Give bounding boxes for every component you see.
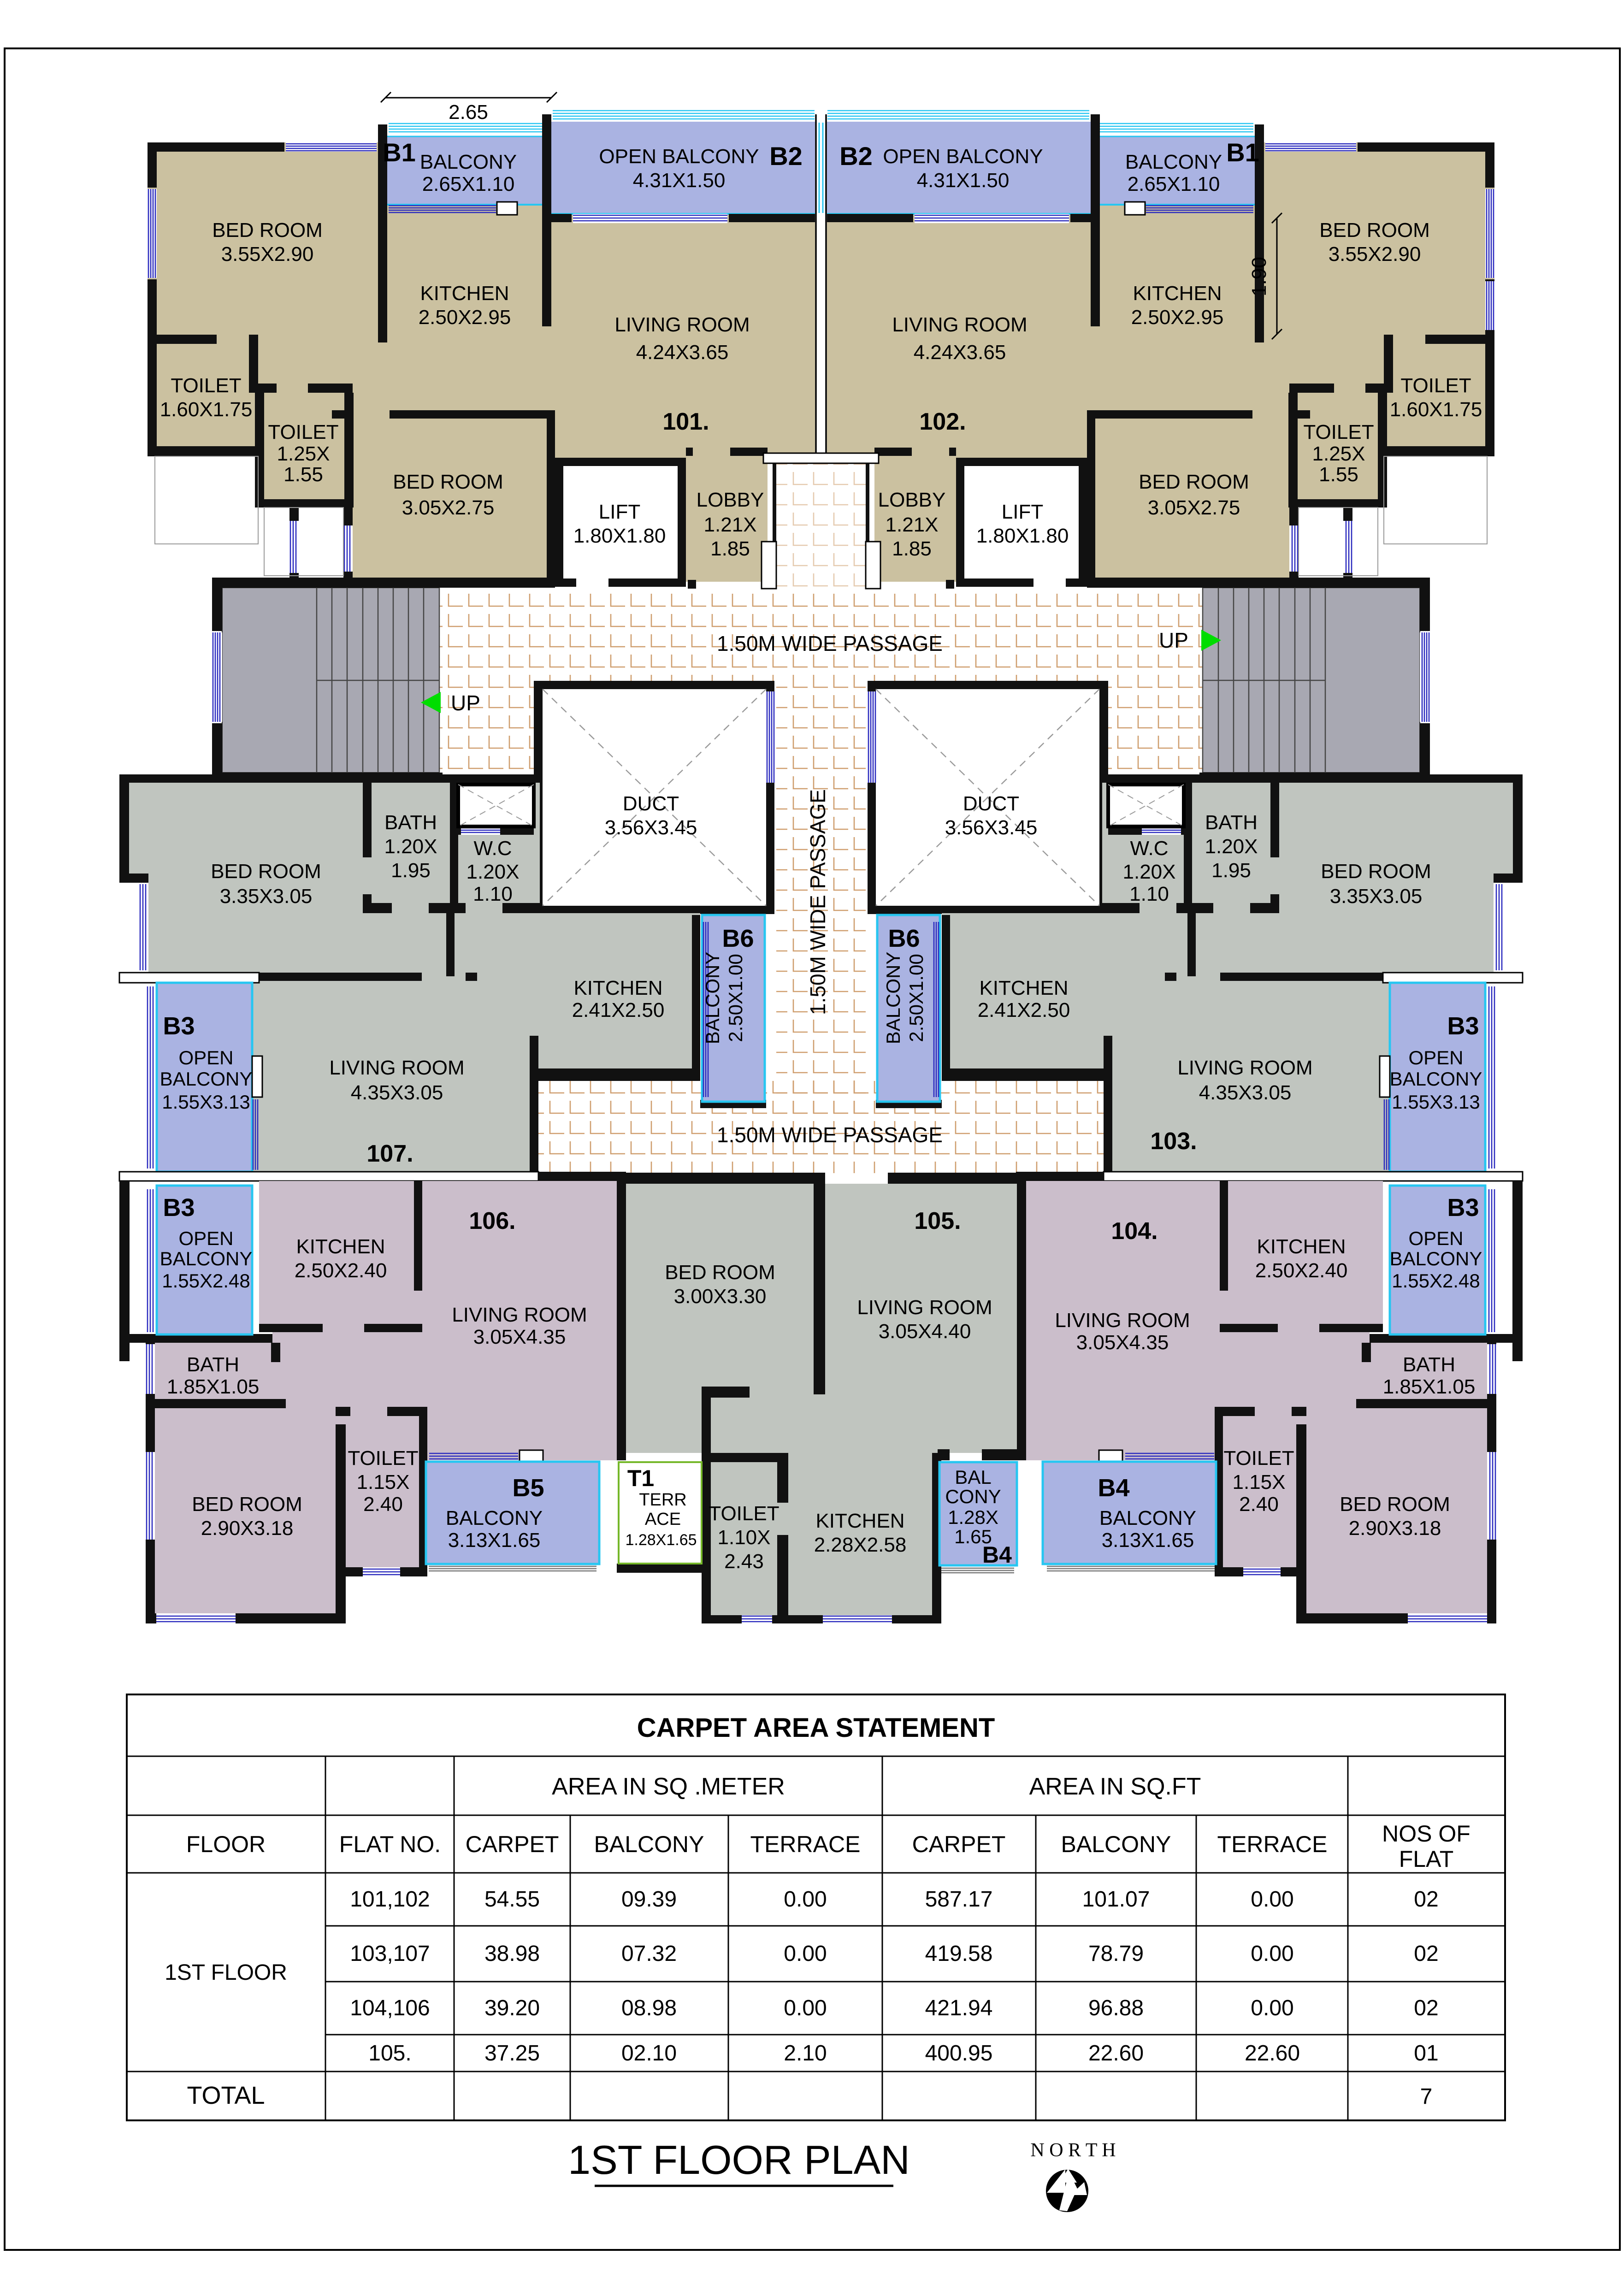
- svg-text:0.00: 0.00: [784, 1996, 827, 2020]
- svg-text:02: 02: [1414, 1996, 1438, 2020]
- svg-text:2.50X1.00: 2.50X1.00: [905, 954, 927, 1042]
- svg-text:BALCONY: BALCONY: [1099, 1507, 1196, 1529]
- svg-text:B2: B2: [769, 142, 803, 171]
- svg-text:3.35X3.05: 3.35X3.05: [1330, 885, 1423, 908]
- svg-text:2.50X2.40: 2.50X2.40: [1255, 1259, 1348, 1282]
- svg-text:DUCT: DUCT: [963, 792, 1019, 815]
- svg-text:1.10: 1.10: [1129, 883, 1169, 905]
- svg-text:1.21X: 1.21X: [886, 514, 939, 536]
- svg-text:1.25X: 1.25X: [277, 443, 330, 465]
- svg-text:CARPET AREA STATEMENT: CARPET AREA STATEMENT: [637, 1713, 995, 1743]
- svg-text:BED ROOM: BED ROOM: [1321, 860, 1431, 883]
- svg-text:2.65: 2.65: [449, 101, 488, 124]
- svg-text:08.98: 08.98: [621, 1996, 677, 2020]
- svg-text:BED ROOM: BED ROOM: [1319, 219, 1430, 242]
- svg-text:1.80X1.80: 1.80X1.80: [976, 525, 1069, 547]
- svg-text:TOILET: TOILET: [1223, 1447, 1294, 1470]
- svg-text:01: 01: [1414, 2041, 1438, 2066]
- svg-text:1.80X1.80: 1.80X1.80: [573, 525, 666, 547]
- svg-text:BALCONY: BALCONY: [1390, 1068, 1482, 1090]
- svg-text:1.60X1.75: 1.60X1.75: [1390, 398, 1482, 421]
- svg-text:2.90X3.18: 2.90X3.18: [1349, 1517, 1441, 1540]
- svg-text:BED ROOM: BED ROOM: [192, 1493, 302, 1516]
- svg-text:1.60X1.75: 1.60X1.75: [160, 398, 253, 421]
- svg-text:B1: B1: [1226, 138, 1259, 167]
- svg-text:ACE: ACE: [645, 1510, 681, 1529]
- svg-text:T1: T1: [627, 1465, 654, 1491]
- svg-text:54.55: 54.55: [484, 1887, 540, 1912]
- svg-text:104,106: 104,106: [350, 1996, 430, 2020]
- svg-text:1.95: 1.95: [391, 859, 431, 882]
- svg-text:103.: 103.: [1150, 1128, 1197, 1155]
- svg-text:OPEN: OPEN: [1408, 1047, 1463, 1068]
- svg-text:BALCONY: BALCONY: [1390, 1248, 1482, 1269]
- svg-text:KITCHEN: KITCHEN: [296, 1235, 385, 1258]
- svg-text:AREA IN SQ .METER: AREA IN SQ .METER: [552, 1773, 785, 1800]
- svg-text:TOILET: TOILET: [1303, 421, 1374, 443]
- svg-text:B6: B6: [722, 925, 754, 952]
- svg-text:1.50M WIDE PASSAGE: 1.50M WIDE PASSAGE: [806, 789, 830, 1015]
- svg-text:BALCONY: BALCONY: [882, 952, 904, 1045]
- svg-text:LIVING ROOM: LIVING ROOM: [857, 1296, 992, 1319]
- svg-text:1.55: 1.55: [283, 463, 323, 486]
- svg-text:2.40: 2.40: [363, 1493, 403, 1516]
- svg-text:3.56X3.45: 3.56X3.45: [945, 816, 1038, 839]
- svg-text:UP: UP: [451, 691, 480, 715]
- svg-text:BALCONY: BALCONY: [446, 1507, 543, 1529]
- svg-text:TOTAL: TOTAL: [187, 2082, 265, 2109]
- svg-text:3.05X4.35: 3.05X4.35: [1076, 1331, 1169, 1354]
- svg-text:BALCONY: BALCONY: [1125, 151, 1222, 173]
- svg-text:BALCONY: BALCONY: [420, 151, 517, 173]
- svg-text:1.28X: 1.28X: [948, 1506, 998, 1528]
- svg-text:LIVING ROOM: LIVING ROOM: [329, 1057, 464, 1079]
- svg-text:1.28X1.65: 1.28X1.65: [625, 1531, 697, 1549]
- svg-text:LIVING ROOM: LIVING ROOM: [452, 1304, 587, 1326]
- svg-text:2.50X2.95: 2.50X2.95: [1131, 306, 1224, 329]
- svg-text:2.65X1.10: 2.65X1.10: [1128, 173, 1220, 195]
- svg-text:421.94: 421.94: [925, 1996, 993, 2020]
- svg-text:1.10X: 1.10X: [718, 1526, 771, 1549]
- svg-text:BED ROOM: BED ROOM: [393, 471, 503, 493]
- svg-text:B5: B5: [512, 1474, 544, 1502]
- svg-text:96.88: 96.88: [1088, 1996, 1144, 2020]
- svg-text:2.41X2.50: 2.41X2.50: [978, 999, 1070, 1021]
- svg-text:KITCHEN: KITCHEN: [979, 977, 1068, 999]
- svg-text:1.90: 1.90: [1248, 257, 1270, 296]
- svg-text:2.41X2.50: 2.41X2.50: [572, 999, 665, 1021]
- svg-text:B3: B3: [1447, 1012, 1479, 1040]
- svg-text:22.60: 22.60: [1088, 2041, 1144, 2066]
- svg-text:BALCONY: BALCONY: [702, 952, 723, 1045]
- svg-text:2.43: 2.43: [724, 1550, 764, 1573]
- svg-text:BED ROOM: BED ROOM: [665, 1261, 775, 1284]
- svg-text:LIFT: LIFT: [599, 501, 640, 523]
- svg-text:B3: B3: [163, 1194, 195, 1222]
- svg-text:3.13X1.65: 3.13X1.65: [1102, 1529, 1194, 1552]
- svg-text:4.35X3.05: 4.35X3.05: [351, 1081, 443, 1104]
- svg-text:B6: B6: [888, 925, 920, 952]
- svg-text:FLOOR: FLOOR: [186, 1831, 266, 1857]
- svg-text:TERR: TERR: [639, 1490, 686, 1510]
- svg-text:38.98: 38.98: [484, 1942, 540, 1966]
- svg-text:3.13X1.65: 3.13X1.65: [448, 1529, 541, 1552]
- svg-text:B4: B4: [1098, 1474, 1129, 1502]
- svg-text:1.55: 1.55: [1319, 463, 1358, 486]
- svg-text:BALCONY: BALCONY: [160, 1248, 253, 1269]
- svg-text:TOILET: TOILET: [268, 421, 338, 443]
- svg-text:105.: 105.: [914, 1208, 961, 1234]
- svg-text:BAL: BAL: [955, 1466, 991, 1488]
- svg-text:BATH: BATH: [187, 1353, 239, 1376]
- svg-text:KITCHEN: KITCHEN: [420, 282, 509, 305]
- svg-text:1.55X3.13: 1.55X3.13: [162, 1091, 250, 1113]
- svg-text:N O R T H: N O R T H: [1030, 2140, 1116, 2161]
- svg-text:3.55X2.90: 3.55X2.90: [1329, 243, 1421, 266]
- svg-text:LOBBY: LOBBY: [697, 489, 764, 511]
- svg-text:1.20X: 1.20X: [1123, 861, 1176, 883]
- svg-text:BATH: BATH: [1403, 1353, 1455, 1376]
- svg-text:1.20X: 1.20X: [1205, 835, 1258, 858]
- svg-text:3.35X3.05: 3.35X3.05: [220, 885, 313, 908]
- svg-text:102.: 102.: [919, 408, 966, 435]
- svg-text:104.: 104.: [1111, 1218, 1157, 1245]
- svg-text:2.50X2.95: 2.50X2.95: [419, 306, 511, 329]
- svg-text:4.24X3.65: 4.24X3.65: [914, 341, 1006, 364]
- svg-text:BED ROOM: BED ROOM: [212, 219, 323, 242]
- svg-text:BED ROOM: BED ROOM: [1340, 1493, 1450, 1516]
- svg-text:1.55X2.48: 1.55X2.48: [1392, 1270, 1480, 1292]
- svg-text:OPEN BALCONY: OPEN BALCONY: [883, 145, 1043, 168]
- svg-text:3.05X2.75: 3.05X2.75: [402, 496, 495, 519]
- svg-text:BED ROOM: BED ROOM: [1139, 471, 1249, 493]
- svg-text:101,102: 101,102: [350, 1887, 430, 1912]
- svg-text:W.C: W.C: [473, 837, 512, 860]
- svg-text:KITCHEN: KITCHEN: [815, 1510, 904, 1532]
- svg-text:02: 02: [1414, 1887, 1438, 1912]
- svg-text:CONY: CONY: [945, 1486, 1001, 1507]
- svg-text:1.10: 1.10: [473, 883, 513, 905]
- svg-text:39.20: 39.20: [484, 1996, 540, 2020]
- svg-text:BALCONY: BALCONY: [160, 1068, 253, 1090]
- svg-text:B1: B1: [383, 138, 416, 167]
- svg-text:0.00: 0.00: [784, 1942, 827, 1966]
- svg-text:1.55X3.13: 1.55X3.13: [1392, 1091, 1480, 1113]
- svg-text:09.39: 09.39: [621, 1887, 677, 1912]
- svg-text:2.40: 2.40: [1239, 1493, 1279, 1516]
- svg-text:1.25X: 1.25X: [1312, 443, 1365, 465]
- svg-text:B3: B3: [1447, 1194, 1479, 1222]
- svg-text:TOILET: TOILET: [709, 1502, 779, 1525]
- svg-text:1.95: 1.95: [1211, 859, 1251, 882]
- svg-text:3.05X4.40: 3.05X4.40: [879, 1320, 971, 1343]
- svg-text:1.50M WIDE PASSAGE: 1.50M WIDE PASSAGE: [717, 1123, 943, 1147]
- svg-text:LIVING ROOM: LIVING ROOM: [1055, 1309, 1190, 1332]
- svg-text:NOS OF: NOS OF: [1382, 1821, 1470, 1847]
- svg-text:1.15X: 1.15X: [1233, 1471, 1286, 1493]
- svg-text:105.: 105.: [368, 2041, 411, 2066]
- svg-text:2.50X1.00: 2.50X1.00: [725, 954, 746, 1042]
- svg-text:LOBBY: LOBBY: [878, 489, 946, 511]
- svg-text:0.00: 0.00: [784, 1887, 827, 1912]
- svg-text:4.31X1.50: 4.31X1.50: [917, 169, 1010, 192]
- svg-text:1.15X: 1.15X: [357, 1471, 410, 1493]
- svg-text:1.85: 1.85: [710, 537, 750, 560]
- svg-text:78.79: 78.79: [1088, 1942, 1144, 1966]
- svg-text:LIFT: LIFT: [1002, 501, 1043, 523]
- svg-text:TOILET: TOILET: [171, 374, 241, 397]
- svg-text:LIVING ROOM: LIVING ROOM: [614, 313, 750, 336]
- svg-text:1.21X: 1.21X: [704, 514, 757, 536]
- svg-text:B3: B3: [163, 1012, 195, 1040]
- svg-text:OPEN: OPEN: [178, 1228, 233, 1249]
- svg-text:DUCT: DUCT: [623, 792, 679, 815]
- svg-text:BATH: BATH: [1205, 811, 1258, 834]
- svg-text:1.85: 1.85: [892, 537, 932, 560]
- svg-text:1ST FLOOR: 1ST FLOOR: [165, 1960, 287, 1985]
- svg-text:KITCHEN: KITCHEN: [573, 977, 662, 999]
- svg-text:B4: B4: [982, 1542, 1012, 1568]
- svg-text:TERRACE: TERRACE: [750, 1831, 861, 1857]
- svg-text:FLAT NO.: FLAT NO.: [339, 1831, 441, 1857]
- svg-text:3.55X2.90: 3.55X2.90: [221, 243, 314, 266]
- svg-text:UP: UP: [1159, 628, 1188, 652]
- svg-text:3.56X3.45: 3.56X3.45: [605, 816, 697, 839]
- svg-text:107.: 107.: [366, 1140, 413, 1167]
- svg-text:OPEN: OPEN: [1408, 1228, 1463, 1249]
- svg-text:2.28X2.58: 2.28X2.58: [814, 1534, 907, 1556]
- svg-text:BALCONY: BALCONY: [1061, 1831, 1171, 1857]
- svg-text:1.85X1.05: 1.85X1.05: [1383, 1375, 1476, 1398]
- svg-text:TOILET: TOILET: [1400, 374, 1471, 397]
- svg-text:1.85X1.05: 1.85X1.05: [167, 1375, 260, 1398]
- svg-text:7: 7: [1420, 2084, 1433, 2109]
- svg-text:OPEN: OPEN: [178, 1047, 233, 1068]
- svg-text:2.65X1.10: 2.65X1.10: [422, 173, 515, 195]
- svg-text:TERRACE: TERRACE: [1217, 1831, 1328, 1857]
- svg-text:1.20X: 1.20X: [467, 861, 520, 883]
- svg-text:3.05X4.35: 3.05X4.35: [473, 1326, 566, 1348]
- svg-text:3.00X3.30: 3.00X3.30: [674, 1285, 767, 1308]
- svg-text:1.55X2.48: 1.55X2.48: [162, 1270, 250, 1292]
- svg-text:FLAT: FLAT: [1399, 1846, 1454, 1872]
- svg-text:LIVING ROOM: LIVING ROOM: [892, 313, 1027, 336]
- svg-text:4.24X3.65: 4.24X3.65: [636, 341, 729, 364]
- svg-text:22.60: 22.60: [1245, 2041, 1300, 2066]
- svg-text:4.31X1.50: 4.31X1.50: [633, 169, 726, 192]
- svg-text:AREA IN SQ.FT: AREA IN SQ.FT: [1029, 1773, 1201, 1800]
- svg-text:2.50X2.40: 2.50X2.40: [295, 1259, 387, 1282]
- svg-text:OPEN BALCONY: OPEN BALCONY: [599, 145, 759, 168]
- svg-text:587.17: 587.17: [925, 1887, 993, 1912]
- svg-text:101.: 101.: [662, 408, 709, 435]
- svg-text:W.C: W.C: [1130, 837, 1168, 860]
- svg-text:419.58: 419.58: [925, 1942, 993, 1966]
- svg-text:B2: B2: [839, 142, 873, 171]
- svg-text:0.00: 0.00: [1251, 1942, 1293, 1966]
- svg-text:37.25: 37.25: [484, 2041, 540, 2066]
- svg-text:LIVING ROOM: LIVING ROOM: [1177, 1057, 1312, 1079]
- svg-text:KITCHEN: KITCHEN: [1133, 282, 1222, 305]
- svg-text:02.10: 02.10: [621, 2041, 677, 2066]
- svg-text:BED ROOM: BED ROOM: [211, 860, 321, 883]
- svg-text:400.95: 400.95: [925, 2041, 993, 2066]
- svg-text:CARPET: CARPET: [466, 1831, 559, 1857]
- svg-text:CARPET: CARPET: [912, 1831, 1006, 1857]
- svg-text:BALCONY: BALCONY: [594, 1831, 704, 1857]
- svg-text:1.50M WIDE PASSAGE: 1.50M WIDE PASSAGE: [717, 632, 943, 655]
- svg-text:1ST FLOOR PLAN: 1ST FLOOR PLAN: [568, 2137, 910, 2183]
- svg-text:3.05X2.75: 3.05X2.75: [1148, 496, 1240, 519]
- svg-text:2.90X3.18: 2.90X3.18: [201, 1517, 294, 1540]
- svg-text:KITCHEN: KITCHEN: [1257, 1235, 1346, 1258]
- svg-text:101.07: 101.07: [1082, 1887, 1150, 1912]
- svg-text:2.10: 2.10: [784, 2041, 827, 2066]
- svg-text:1.20X: 1.20X: [384, 835, 437, 858]
- svg-text:TOILET: TOILET: [348, 1447, 418, 1470]
- svg-text:02: 02: [1414, 1942, 1438, 1966]
- svg-text:106.: 106.: [469, 1208, 515, 1234]
- svg-text:103,107: 103,107: [350, 1942, 430, 1966]
- svg-text:0.00: 0.00: [1251, 1887, 1293, 1912]
- svg-text:07.32: 07.32: [621, 1942, 677, 1966]
- svg-text:4.35X3.05: 4.35X3.05: [1199, 1081, 1292, 1104]
- svg-text:BATH: BATH: [384, 811, 437, 834]
- svg-text:0.00: 0.00: [1251, 1996, 1293, 2020]
